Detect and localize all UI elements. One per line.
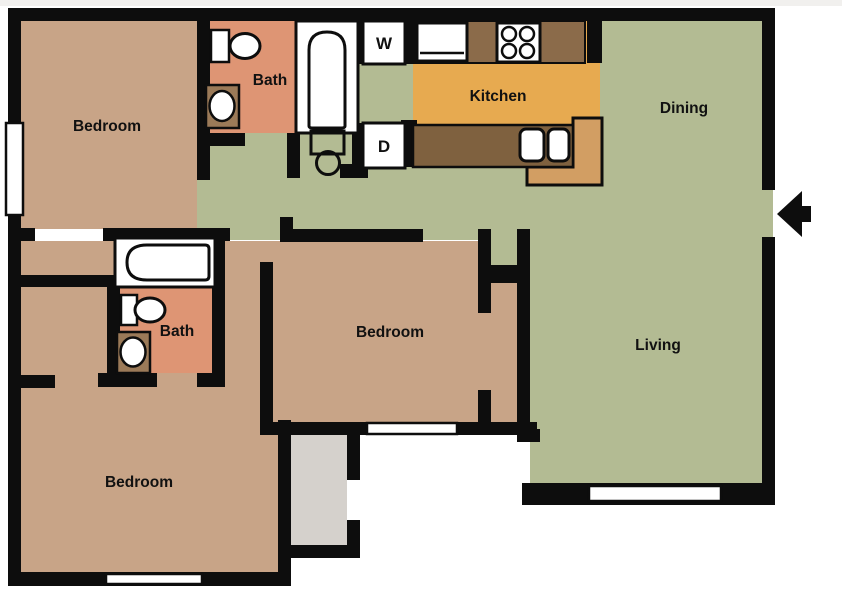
refrigerator-icon	[417, 23, 467, 61]
washer-label: W	[376, 34, 393, 53]
entry-door-arrow-icon	[777, 191, 811, 237]
living-floor-west	[530, 240, 602, 483]
sink-icon	[210, 91, 235, 121]
bedroom-3-label: Bedroom	[105, 474, 173, 491]
dining-label: Dining	[660, 100, 708, 117]
burner-icon	[520, 44, 534, 58]
floorplan-svg: W D	[0, 0, 842, 604]
sink-basin-icon	[520, 129, 544, 161]
window	[367, 423, 457, 434]
bedroom-1-label: Bedroom	[73, 118, 141, 135]
window	[106, 574, 202, 584]
dining-living-floor	[600, 21, 762, 483]
tub-alcove	[296, 21, 358, 133]
closet-gap-floor	[491, 240, 517, 266]
sink-basin-icon	[548, 129, 569, 161]
sink-icon	[121, 338, 146, 367]
toilet-icon	[230, 34, 260, 59]
dryer-label: D	[378, 137, 390, 156]
toilet-icon	[135, 298, 165, 322]
burner-icon	[502, 44, 516, 58]
burner-icon	[502, 27, 516, 41]
toilet-tank-icon	[211, 30, 229, 62]
entry-gap-floor	[762, 190, 773, 237]
laundry-nook-floor	[352, 64, 417, 123]
bedroom-2-label: Bedroom	[356, 324, 424, 341]
bath-2-label: Bath	[160, 323, 194, 340]
window	[589, 486, 721, 501]
living-label: Living	[635, 337, 681, 354]
kitchen-label: Kitchen	[470, 88, 527, 105]
floorplan-image: W D	[0, 0, 842, 604]
burner-icon	[520, 27, 534, 41]
patio-floor	[291, 435, 347, 545]
bath-1-label: Bath	[253, 72, 287, 89]
window	[6, 123, 23, 215]
